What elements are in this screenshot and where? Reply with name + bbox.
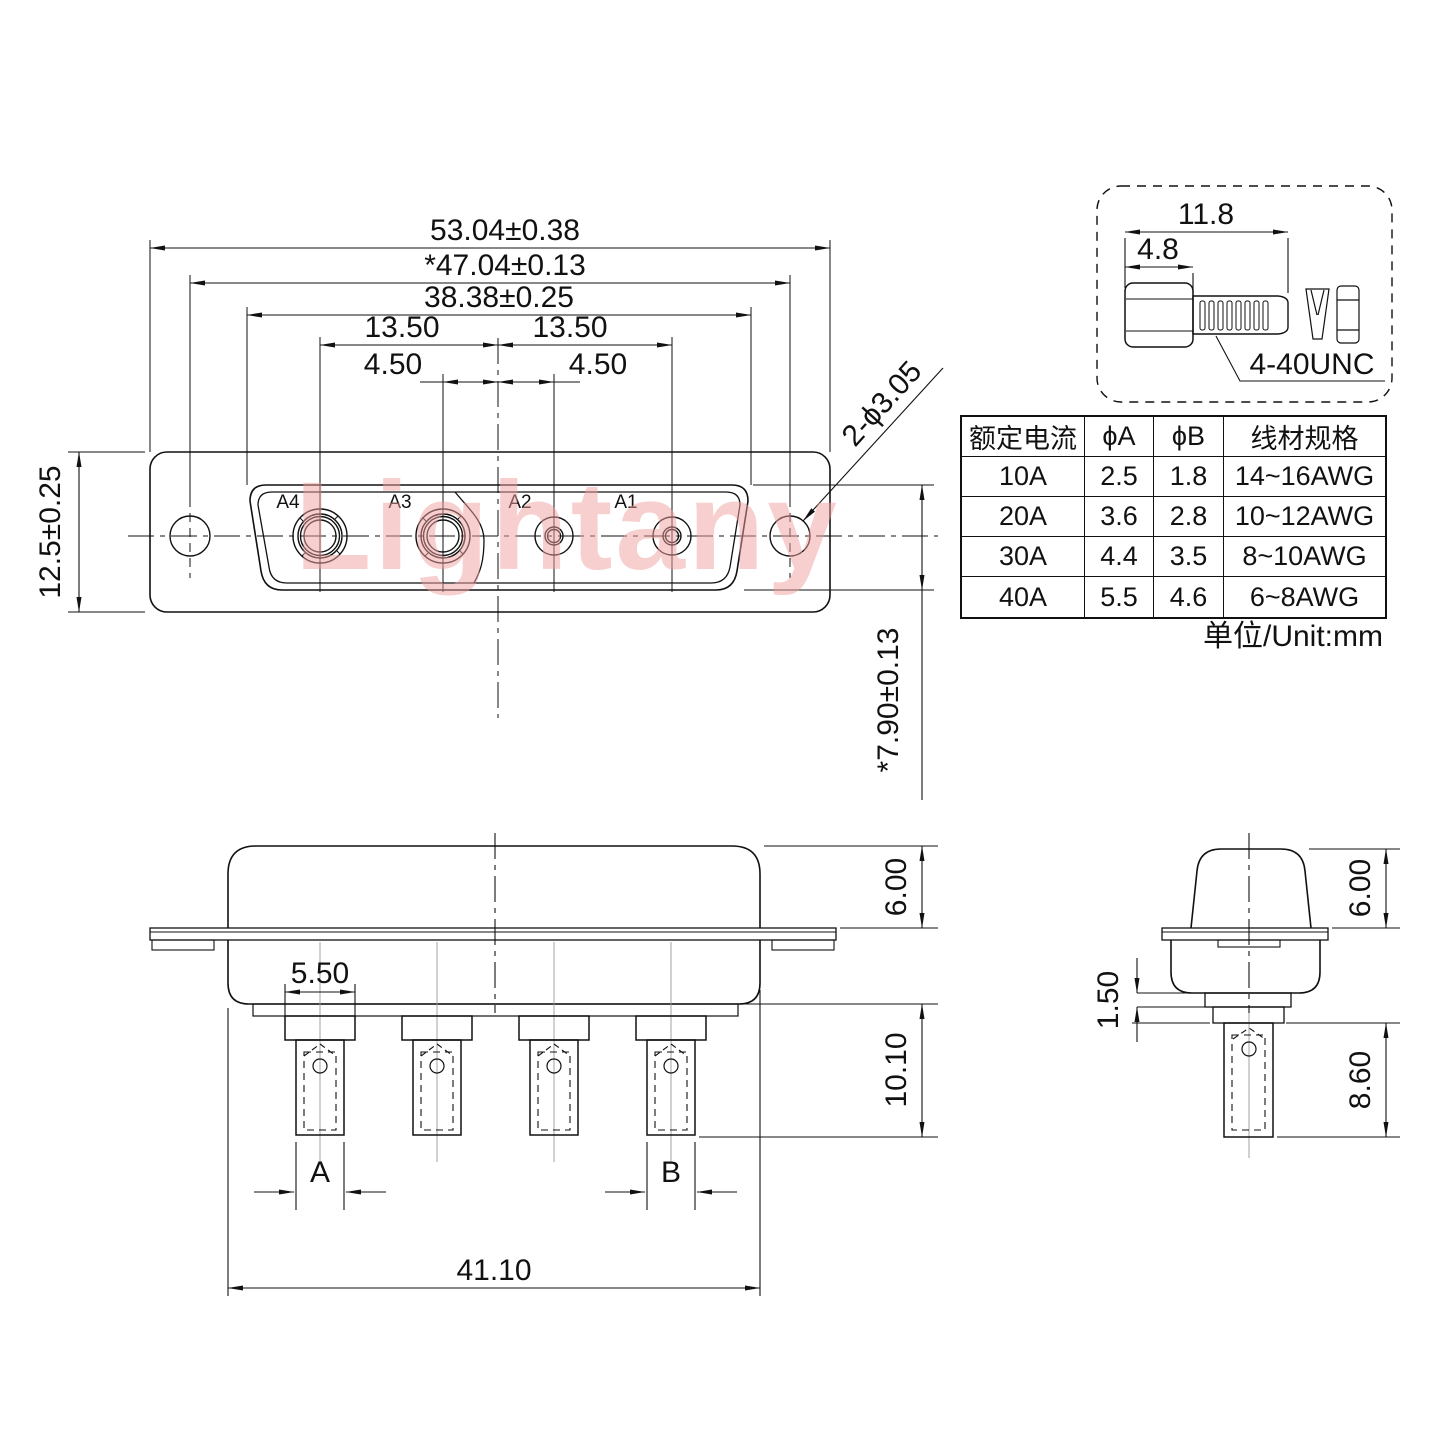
spec-header-phi-a: ϕA [1085,417,1154,457]
screw-thread-spec: 4-40UNC [1249,348,1374,381]
side-shell [228,846,760,928]
screw-head [1125,283,1193,347]
pin-section-label-b: B [661,1156,681,1189]
spec-cell: 6~8AWG [1224,577,1385,617]
end-cap [1191,849,1311,928]
contact-label-a4: A4 [276,492,300,513]
end-view-labels: 6.00 1.50 8.60 [1092,859,1377,1109]
front-view-dimension-labels: 53.04±0.38 *47.04±0.13 38.38±0.25 13.50 … [34,214,928,772]
contact-label-a2: A2 [508,492,531,513]
spec-cell: 30A [962,537,1085,577]
spec-cell: 5.5 [1085,577,1154,617]
dim-side-overall-width: 41.10 [456,1254,531,1287]
spec-cell: 4.4 [1085,537,1154,577]
screw-threads [1200,301,1268,330]
side-view [150,846,836,1016]
dim-mount-hole-callout: 2-ϕ3.05 [836,355,929,453]
dim-flange-height: 12.5±0.25 [34,465,67,598]
end-pin [1224,1013,1273,1158]
dim-pitch-outer-right: 13.50 [532,311,607,344]
spec-cell: 8~10AWG [1224,537,1385,577]
pin-section-label-a: A [310,1156,330,1189]
spec-cell: 40A [962,577,1085,617]
dim-pitch-outer-left: 13.50 [364,311,439,344]
side-flange-tab-left [152,940,214,950]
spec-cell: 1.8 [1154,457,1224,497]
dim-side-pin-length: 10.10 [880,1032,913,1107]
unit-note: 单位/Unit:mm [1203,620,1383,653]
spec-table: 额定电流 ϕA ϕB 线材规格 10A 2.5 1.8 14~16AWG 20A… [960,415,1387,619]
end-step-1 [1205,993,1291,1007]
spec-header-phi-b: ϕB [1154,417,1224,457]
dsub-outline-inner [258,492,740,583]
dim-end-pin-length: 8.60 [1344,1051,1377,1109]
dim-side-shell-height: 6.00 [880,858,913,916]
front-flange-outline [150,452,830,612]
screw-detail-labels: 11.8 4.8 4-40UNC [1137,198,1374,381]
end-flange [1162,928,1328,940]
spec-header-wire: 线材规格 [1224,417,1385,457]
spec-header-current: 额定电流 [962,417,1085,457]
side-flange [150,928,836,940]
spec-cell: 14~16AWG [1224,457,1385,497]
screw-shaft [1193,296,1288,334]
engineering-drawing-page: 53.04±0.38 *47.04±0.13 38.38±0.25 13.50 … [0,0,1440,1440]
spec-cell: 20A [962,497,1085,537]
screw-head-length: 4.8 [1137,233,1179,266]
screw-end-part [1337,286,1359,343]
spec-cell: 3.6 [1085,497,1154,537]
spec-cell: 2.8 [1154,497,1224,537]
spec-cell: 3.5 [1154,537,1224,577]
dim-end-step-height: 1.50 [1092,971,1125,1029]
spec-cell: 10A [962,457,1085,497]
spec-cell: 10~12AWG [1224,497,1385,537]
spec-cell: 2.5 [1085,457,1154,497]
side-flange-tab-right [772,940,834,950]
dim-shell-width: 38.38±0.25 [424,281,574,314]
screw-tip-part [1306,289,1329,339]
dim-pitch-inner-right: 4.50 [569,348,627,381]
front-view [150,452,830,612]
dim-pitch-inner-left: 4.50 [364,348,422,381]
end-body [1171,940,1320,993]
drawing-canvas: 53.04±0.38 *47.04±0.13 38.38±0.25 13.50 … [0,0,1440,1440]
side-view-labels: 5.50 6.00 10.10 41.10 A B [291,858,913,1287]
dim-overall-width: 53.04±0.38 [430,214,580,247]
end-view [1162,849,1328,1158]
dim-end-shell-height: 6.00 [1344,859,1377,917]
dim-mount-span: *47.04±0.13 [424,249,586,282]
front-view-dimensions [79,248,943,800]
dim-shoulder-width: 5.50 [291,957,349,990]
spec-cell: 4.6 [1154,577,1224,617]
contact-label-a3: A3 [388,492,411,513]
side-view-dimensions [228,833,938,1296]
dsub-outline-outer [250,485,748,590]
screw-overall-length: 11.8 [1178,198,1234,231]
dim-opening-height: *7.90±0.13 [872,628,905,773]
contact-label-a1: A1 [614,492,637,513]
